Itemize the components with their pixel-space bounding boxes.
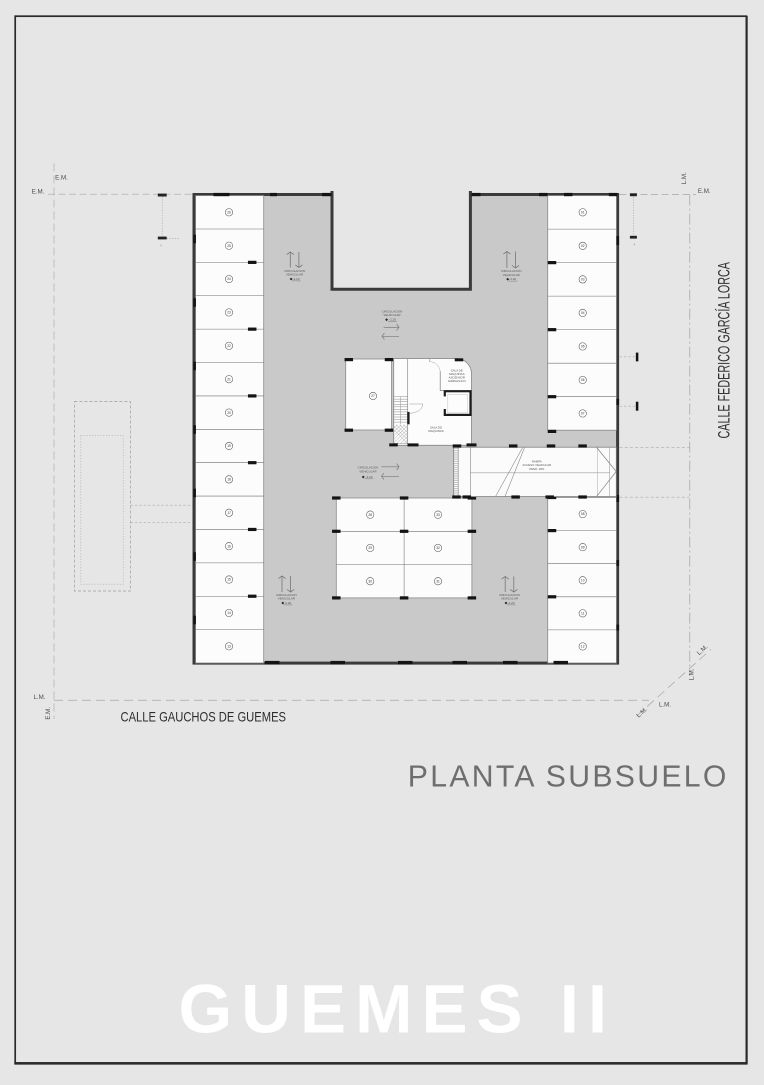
svg-text:L.M.: L.M. [659, 701, 671, 708]
svg-text:10: 10 [581, 578, 585, 582]
svg-text:23: 23 [227, 311, 231, 315]
svg-text:VEHICULAR: VEHICULAR [278, 597, 296, 601]
svg-text:VEHICULAR: VEHICULAR [359, 469, 377, 473]
svg-text:VEHICULAR: VEHICULAR [501, 597, 519, 601]
svg-text:L.M.: L.M. [681, 172, 688, 184]
svg-text:-2.20: -2.20 [389, 318, 396, 322]
svg-text:E.M.: E.M. [698, 188, 711, 195]
svg-text:25: 25 [227, 244, 231, 248]
svg-text:22: 22 [227, 344, 231, 348]
svg-text:06: 06 [581, 378, 585, 382]
svg-text:29: 29 [368, 546, 372, 550]
svg-text:CALLE GAUCHOS DE GUEMES: CALLE GAUCHOS DE GUEMES [121, 708, 287, 724]
svg-text:15: 15 [227, 578, 231, 582]
svg-text:31: 31 [436, 579, 440, 583]
svg-text:12: 12 [581, 645, 585, 649]
svg-text:05: 05 [581, 345, 585, 349]
svg-text:01: 01 [581, 211, 585, 215]
svg-text:09: 09 [581, 545, 585, 549]
svg-text:-2.20: -2.20 [293, 277, 300, 281]
svg-text:20: 20 [227, 411, 231, 415]
svg-text:21: 21 [227, 377, 231, 381]
svg-text:28: 28 [368, 513, 372, 517]
svg-text:32: 32 [436, 546, 440, 550]
svg-text:04: 04 [581, 311, 585, 315]
svg-text:CALLE FEDERICO GARCÍA LORCA: CALLE FEDERICO GARCÍA LORCA [714, 262, 733, 439]
svg-text:18: 18 [227, 478, 231, 482]
svg-text:26: 26 [227, 210, 231, 214]
svg-text:-2.20: -2.20 [509, 277, 516, 281]
svg-text:13: 13 [227, 644, 231, 648]
svg-text:02: 02 [581, 244, 585, 248]
svg-text:VEHICULAR: VEHICULAR [383, 313, 401, 317]
svg-text:HIDRAULICO: HIDRAULICO [448, 379, 467, 383]
svg-text:PEND. 18%: PEND. 18% [529, 467, 544, 471]
svg-text:VEHICULAR: VEHICULAR [286, 273, 304, 277]
svg-text:E.M.: E.M. [55, 174, 68, 181]
svg-text:30: 30 [368, 579, 372, 583]
svg-text:MAQUINAS: MAQUINAS [428, 429, 443, 433]
svg-text:11: 11 [581, 612, 585, 616]
svg-text:24: 24 [227, 277, 231, 281]
svg-text:-2.20: -2.20 [508, 601, 515, 605]
svg-text:PLANTA SUBSUELO: PLANTA SUBSUELO [408, 760, 729, 793]
svg-text:E.M.: E.M. [32, 188, 45, 195]
svg-text:GUEMES II: GUEMES II [179, 971, 617, 1048]
svg-text:33: 33 [436, 513, 440, 517]
svg-text:16: 16 [227, 544, 231, 548]
svg-text:08: 08 [581, 512, 585, 516]
svg-text:-2.20: -2.20 [366, 475, 373, 479]
svg-text:L.M.: L.M. [688, 668, 695, 680]
svg-text:17: 17 [227, 511, 231, 515]
svg-text:L.M.: L.M. [33, 694, 45, 701]
svg-text:27: 27 [371, 394, 375, 398]
svg-text:E.M.: E.M. [45, 707, 52, 720]
svg-text:-2.20: -2.20 [284, 601, 291, 605]
svg-text:19: 19 [227, 444, 231, 448]
svg-text:07: 07 [581, 412, 585, 416]
svg-text:03: 03 [581, 278, 585, 282]
svg-text:VEHICULAR: VEHICULAR [503, 273, 521, 277]
svg-text:14: 14 [227, 611, 231, 615]
